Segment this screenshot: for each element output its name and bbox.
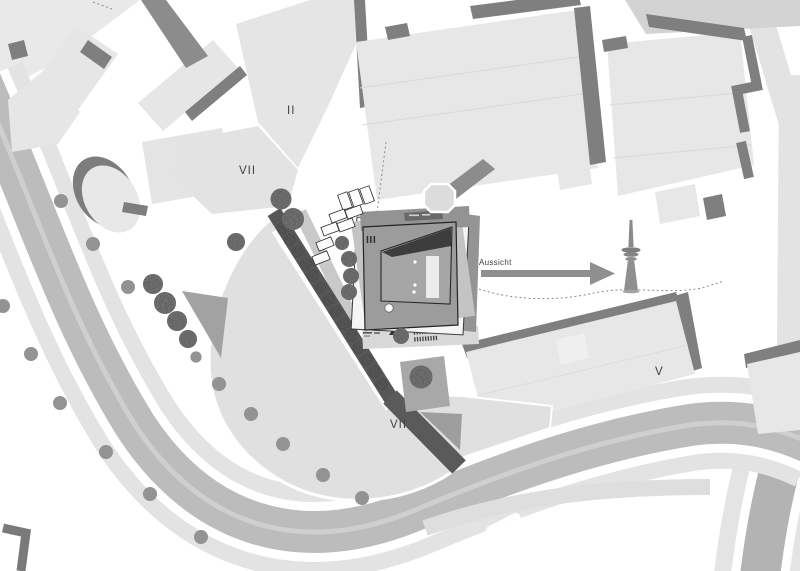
aussicht-label: Aussicht (479, 258, 512, 267)
building-iii-label: III (366, 234, 376, 246)
building-v-label: V (655, 366, 664, 378)
site-plan-canvas: III Aussicht (0, 0, 800, 571)
small-caption-mark (364, 336, 370, 337)
arrow-right-icon (481, 270, 592, 277)
skylight (426, 256, 439, 298)
building-vii-north-label: VII (239, 165, 256, 177)
site-plan: III Aussicht (0, 0, 800, 571)
plaza-vii-south-label: VII (390, 419, 407, 431)
building-ii-label: II (287, 105, 295, 117)
small-caption-mark (374, 332, 380, 333)
small-caption-mark (363, 332, 372, 334)
entrance-pavilion (424, 184, 455, 212)
small-caption-mark (422, 214, 430, 216)
small-caption-mark (409, 215, 419, 217)
roof-opening (385, 304, 393, 312)
